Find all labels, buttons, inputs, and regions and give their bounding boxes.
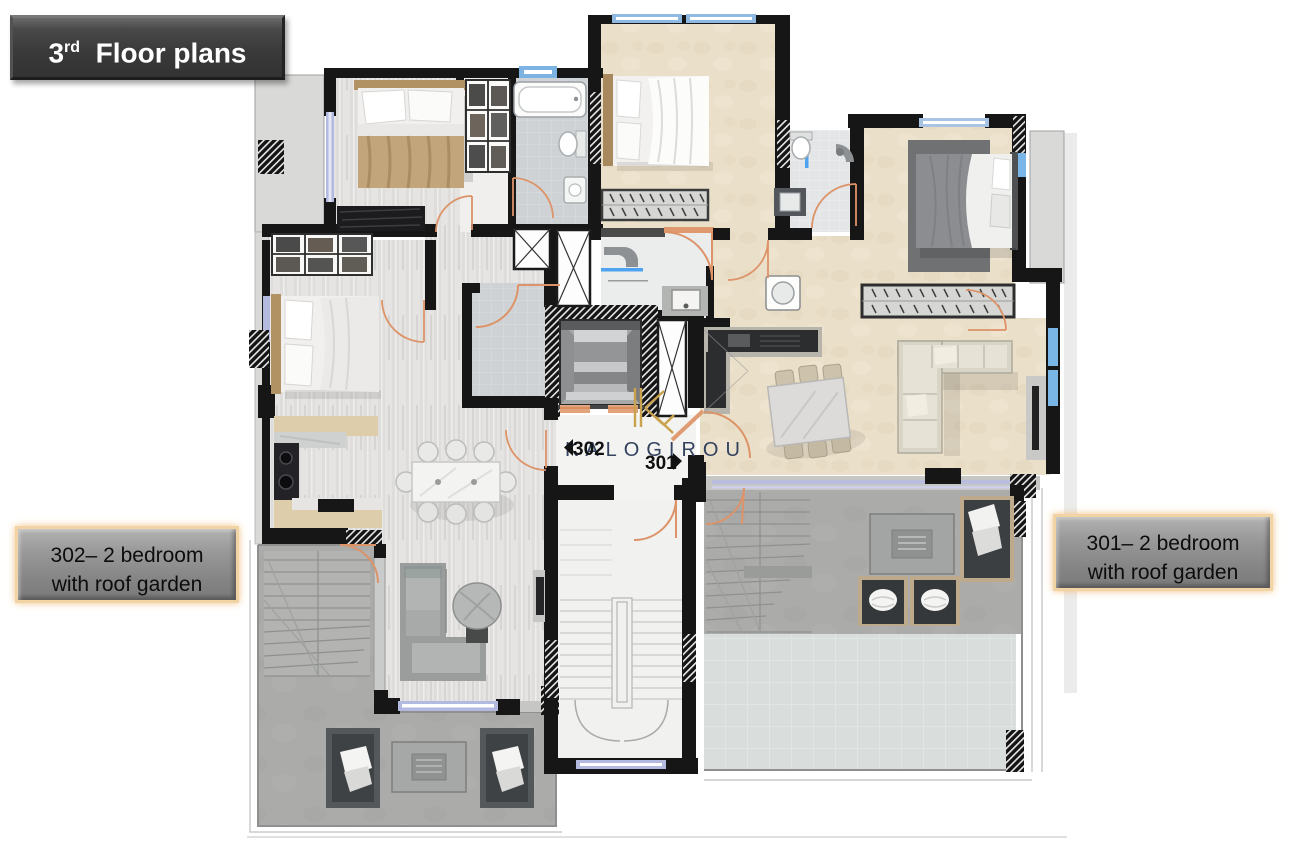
svg-text:302: 302 <box>573 439 605 460</box>
svg-text:301: 301 <box>645 453 677 474</box>
